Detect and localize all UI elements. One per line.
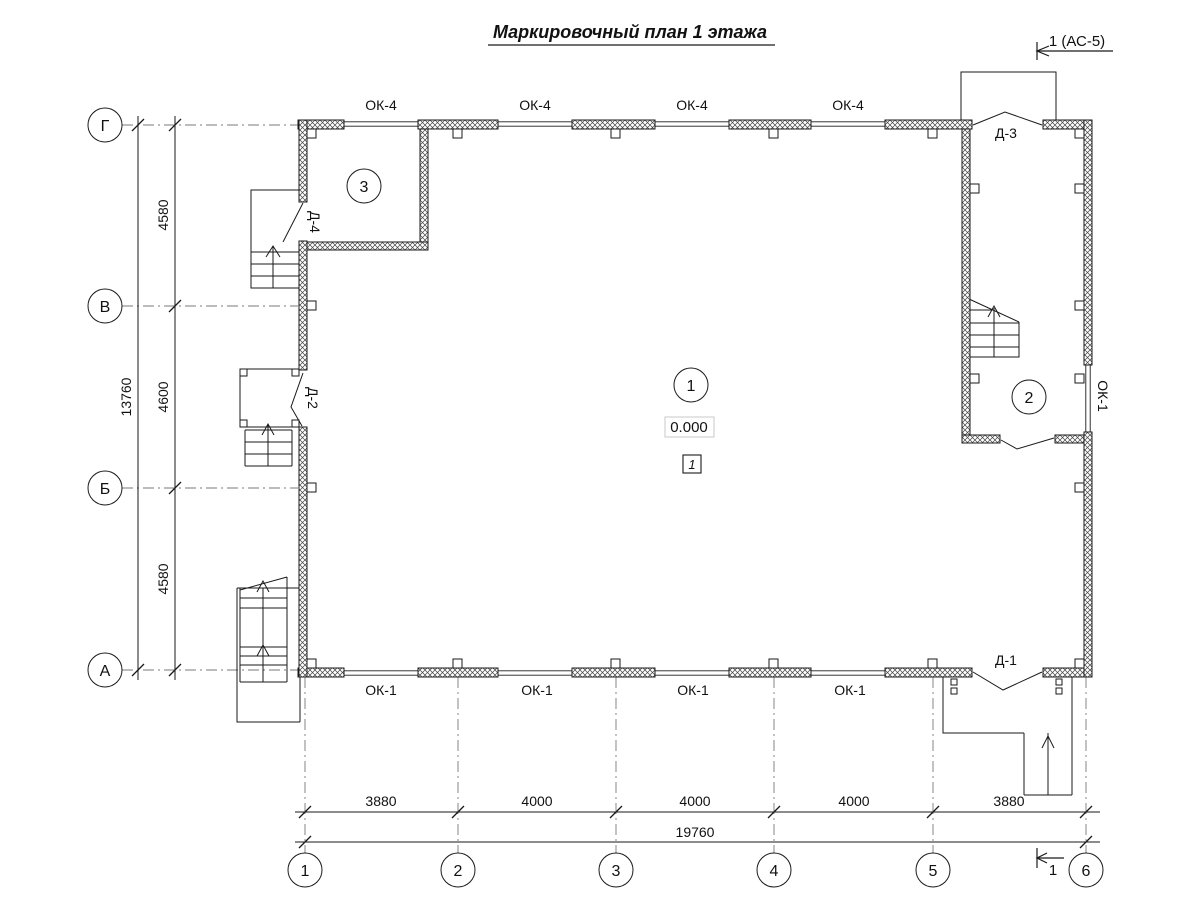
axis-label-b: Б (100, 481, 111, 498)
porch-d2 (240, 369, 299, 466)
floor-type-mark: 1 (683, 455, 701, 473)
axis-label-a: А (100, 663, 111, 680)
dim-horizontal-4: 4000 (838, 793, 869, 809)
door-leaf-d3 (973, 112, 1042, 125)
window-ok4 (498, 122, 572, 126)
window-label-right: ОК-1 (1095, 380, 1111, 412)
window-ok4 (344, 122, 418, 126)
page-title: Маркировочный план 1 этажа (493, 22, 767, 42)
wall-left (299, 120, 307, 202)
door-label-d3: Д-3 (995, 125, 1017, 141)
wall-bottom (418, 668, 498, 677)
window-ok4 (811, 122, 885, 126)
partition-room2 (962, 129, 970, 443)
door-label-d1: Д-1 (995, 652, 1017, 668)
dim-horizontal-1: 3880 (365, 793, 396, 809)
window-label-top-2: ОК-4 (519, 97, 551, 113)
dim-vertical-1: 4580 (155, 199, 171, 230)
interior-stair-room2 (969, 298, 1019, 357)
axis-label-2: 2 (454, 863, 463, 880)
axis-lines (122, 125, 1086, 853)
axis-label-5: 5 (929, 863, 938, 880)
window-ok1 (655, 671, 729, 675)
window-label-bottom-3: ОК-1 (677, 682, 709, 698)
wall-top (729, 120, 811, 129)
room-badge-2: 2 (1025, 390, 1034, 407)
dim-vertical-3: 4580 (155, 563, 171, 594)
wall-bottom (572, 668, 655, 677)
axis-bubbles (88, 108, 1103, 887)
door-swings (283, 112, 1054, 690)
window-label-bottom-1: ОК-1 (365, 682, 397, 698)
room-badges: 1 2 3 (347, 169, 1046, 414)
door-label-d2: Д-2 (305, 387, 321, 409)
axis-label-v: В (100, 299, 111, 316)
axis-label-3: 3 (612, 863, 621, 880)
dim-horizontal-2: 4000 (521, 793, 552, 809)
room-badge-3: 3 (360, 179, 369, 196)
wall-right (1084, 432, 1092, 677)
floor-plan-drawing: Маркировочный план 1 этажа (0, 0, 1200, 900)
porch-d1 (943, 677, 1072, 795)
section-marker-bottom-label: 1 (1049, 862, 1057, 879)
partition-room3 (307, 242, 428, 250)
window-label-top-3: ОК-4 (676, 97, 708, 113)
window-label-top-4: ОК-4 (832, 97, 864, 113)
section-marker-top-label: 1 (АС-5) (1049, 33, 1105, 50)
window-glazing (344, 122, 1090, 675)
window-label-bottom-2: ОК-1 (521, 682, 553, 698)
wall-left (299, 241, 307, 370)
window-ok1 (811, 671, 885, 675)
porch-d4 (251, 190, 299, 288)
door-leaf-d1 (973, 672, 1042, 690)
partition-room3 (420, 129, 428, 250)
elevation-label: 0.000 (670, 419, 708, 436)
window-label-top-1: ОК-4 (365, 97, 397, 113)
dim-horizontal-5: 3880 (993, 793, 1024, 809)
wall-bottom (885, 668, 972, 677)
axis-label-1: 1 (301, 863, 310, 880)
exterior-stair-bottom-left (237, 577, 300, 722)
dim-horizontal-total: 19760 (676, 824, 715, 840)
window-ok1 (344, 671, 418, 675)
partition-room2 (1055, 435, 1084, 443)
wall-top (418, 120, 498, 129)
window-label-bottom-4: ОК-1 (834, 682, 866, 698)
door-leaf-room2 (1001, 438, 1054, 449)
dim-vertical-2: 4600 (155, 381, 171, 412)
window-ok1 (498, 671, 572, 675)
dim-vertical-total: 13760 (118, 377, 134, 416)
axis-label-4: 4 (770, 863, 779, 880)
axis-bubble-labels: Г В Б А 1 2 3 4 5 6 (100, 118, 1091, 880)
door-leaf-d4 (283, 203, 303, 242)
wall-left (299, 427, 307, 677)
dim-horizontal-3: 4000 (679, 793, 710, 809)
wall-top (572, 120, 655, 129)
door-leaf-d2 (291, 373, 303, 426)
door-label-d4: Д-4 (307, 211, 323, 233)
wall-right (1084, 120, 1092, 365)
axis-label-6: 6 (1082, 863, 1091, 880)
elevation-mark: 0.000 (665, 417, 714, 437)
dimension-ticks (132, 119, 1092, 848)
wall-top (885, 120, 972, 129)
wall-bottom (729, 668, 811, 677)
window-ok4 (655, 122, 729, 126)
room-badge-1: 1 (687, 378, 696, 395)
window-ok1-right (1086, 365, 1090, 432)
partition-room2 (962, 435, 1000, 443)
dimension-texts: 4580 4600 4580 13760 3880 4000 4000 4000… (118, 199, 1025, 840)
floor-type-label: 1 (688, 457, 695, 472)
axis-label-g: Г (101, 118, 110, 135)
